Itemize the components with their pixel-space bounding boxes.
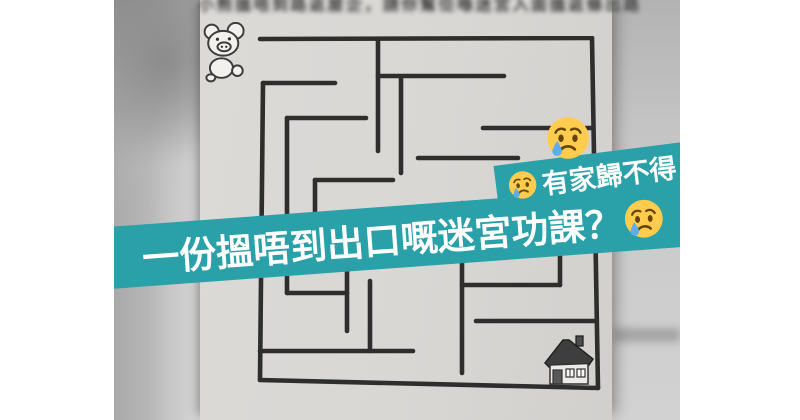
house-icon bbox=[545, 336, 593, 384]
background-shelf-line bbox=[614, 328, 680, 342]
pig-cartoon-icon bbox=[198, 22, 252, 84]
crying-emoji-icon bbox=[506, 168, 538, 200]
photo-background: 小熊搵唔到路返屋企，請你幫佢喺迷宮入面搵返條出路啦！ bbox=[114, 0, 680, 420]
crying-emoji-icon bbox=[622, 197, 665, 240]
crying-emoji-icon bbox=[546, 116, 590, 160]
meme-image: 小熊搵唔到路返屋企，請你幫佢喺迷宮入面搵返條出路啦！ bbox=[0, 0, 800, 420]
blurred-instruction-text: 小熊搵唔到路返屋企，請你幫佢喺迷宮入面搵返條出路啦！ bbox=[198, 0, 638, 15]
